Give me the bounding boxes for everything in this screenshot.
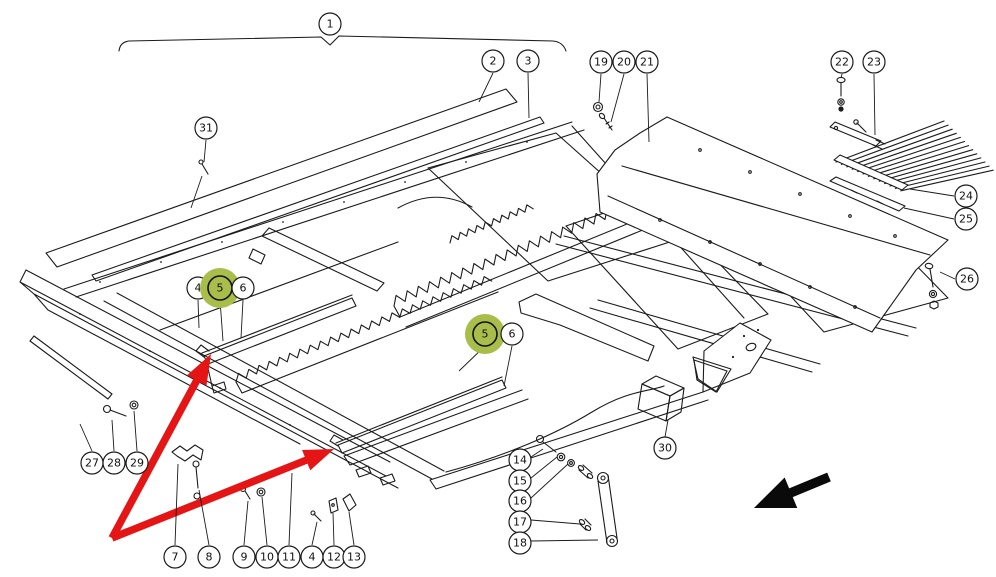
leader-line (134, 411, 137, 451)
left-bolt-washer-27-28 (104, 401, 139, 416)
callout-number: 7 (172, 551, 179, 564)
callout-5b[interactable]: 5 (459, 314, 505, 371)
leader-line (112, 420, 114, 451)
leader-line (241, 300, 243, 338)
leader-line (665, 420, 668, 437)
callout-number: 21 (640, 56, 654, 69)
callout-18[interactable]: 18 (509, 532, 598, 554)
callout-number: 3 (525, 55, 532, 68)
callout-number: 13 (347, 551, 361, 564)
leader-line (531, 520, 580, 524)
leader-line (599, 74, 601, 102)
leader-line (940, 272, 955, 279)
clip-part-12 (329, 498, 338, 513)
frame-structure (20, 36, 993, 547)
direction-arrow (754, 477, 829, 508)
trim-strip-part-3 (92, 117, 544, 281)
callout-10[interactable]: 10 (256, 497, 278, 568)
leader-line (910, 189, 954, 196)
callout-17[interactable]: 17 (509, 511, 580, 533)
callout-23[interactable]: 23 (863, 51, 885, 135)
callout-24[interactable]: 24 (910, 185, 977, 207)
clamp-part-7 (172, 445, 203, 461)
leader-line (289, 473, 292, 545)
callout-6a[interactable]: 6 (232, 277, 254, 338)
leader-line (349, 512, 354, 545)
leader-line (531, 464, 568, 498)
leader-line (80, 424, 92, 451)
callout-number: 2 (490, 55, 497, 68)
callout-31[interactable]: 31 (191, 117, 217, 208)
leader-line (874, 74, 875, 135)
callout-number: 15 (513, 475, 527, 488)
callout-11[interactable]: 11 (278, 473, 300, 568)
callout-number: 19 (594, 56, 608, 69)
serrated-racks (236, 195, 672, 393)
clamp-bar-part-23 (830, 122, 881, 146)
callout-5a[interactable]: 5 (200, 268, 240, 341)
callout-number: 30 (658, 442, 672, 455)
callout-14[interactable]: 14 (509, 449, 543, 471)
callout-19[interactable]: 19 (590, 51, 612, 102)
callout-29[interactable]: 29 (126, 411, 148, 474)
callout-20[interactable]: 20 (611, 51, 635, 122)
callout-number: 10 (260, 551, 274, 564)
callout-30[interactable]: 30 (654, 420, 676, 459)
parts-diagram-page: 1233119202122232425264565627282978910114… (0, 0, 996, 577)
callout-number: 5 (482, 328, 489, 341)
leader-line (244, 501, 248, 545)
assembly-bracket (119, 36, 566, 51)
callout-28[interactable]: 28 (103, 420, 125, 474)
screw-part-31 (199, 160, 208, 174)
pad-part-13 (343, 494, 356, 511)
leader-line (262, 497, 267, 545)
callout-number: 18 (513, 537, 527, 550)
leader-line (528, 73, 529, 118)
callout-number: 9 (241, 551, 248, 564)
callout-number: 26 (960, 273, 974, 286)
callout-number: 16 (513, 495, 527, 508)
callout-27[interactable]: 27 (80, 424, 103, 474)
rear-rail-part-2 (46, 89, 584, 297)
callout-3[interactable]: 3 (517, 50, 539, 118)
leader-line (504, 346, 512, 386)
link-rod-part-18 (598, 473, 609, 484)
leader-line (198, 300, 199, 328)
callout-6b[interactable]: 6 (501, 323, 523, 386)
washer-bolt-19-20 (594, 103, 613, 131)
callout-number: 6 (240, 282, 247, 295)
leader-line (191, 176, 202, 208)
callout-number: 6 (509, 328, 516, 341)
callout-26[interactable]: 26 (940, 268, 978, 290)
leader-line (312, 522, 317, 545)
callout-number: 20 (617, 56, 631, 69)
callout-number: 25 (959, 213, 973, 226)
support-block-part-30 (638, 376, 684, 421)
center-wedge-beam (519, 294, 654, 361)
callout-number: 24 (959, 190, 973, 203)
callout-1[interactable]: 1 (319, 13, 341, 35)
pan-floor (104, 197, 472, 479)
callout-12[interactable]: 12 (323, 513, 345, 568)
callout-number: 29 (130, 457, 144, 470)
callout-number: 28 (107, 457, 121, 470)
callout-9[interactable]: 9 (233, 501, 255, 568)
leader-line (611, 74, 624, 122)
leader-line (175, 464, 178, 545)
callout-4b[interactable]: 4 (301, 522, 323, 568)
bolt-part-22 (830, 77, 885, 149)
callout-number: 5 (217, 282, 224, 295)
leader-line (479, 73, 493, 102)
leader-line (904, 208, 954, 219)
callout-22[interactable]: 22 (831, 51, 853, 78)
callout-number: 1 (327, 18, 334, 31)
callout-number: 8 (206, 551, 213, 564)
callout-number: 4 (309, 551, 316, 564)
callout-13[interactable]: 13 (343, 512, 365, 568)
leader-line (204, 140, 206, 162)
callout-number: 27 (85, 457, 99, 470)
callout-number: 11 (282, 551, 296, 564)
callout-number: 12 (327, 551, 341, 564)
callout-number: 17 (513, 516, 527, 529)
leader-line (333, 513, 334, 545)
leader-line (531, 540, 598, 541)
bottom-hardware-row (172, 445, 356, 521)
callout-number: 22 (835, 56, 849, 69)
callout-number: 23 (867, 56, 881, 69)
support-rail-left-part-5 (196, 295, 356, 393)
leader-line (531, 457, 557, 478)
parts-diagram: 1233119202122232425264565627282978910114… (0, 0, 996, 577)
callout-number: 31 (199, 122, 213, 135)
callout-number: 14 (513, 454, 527, 467)
